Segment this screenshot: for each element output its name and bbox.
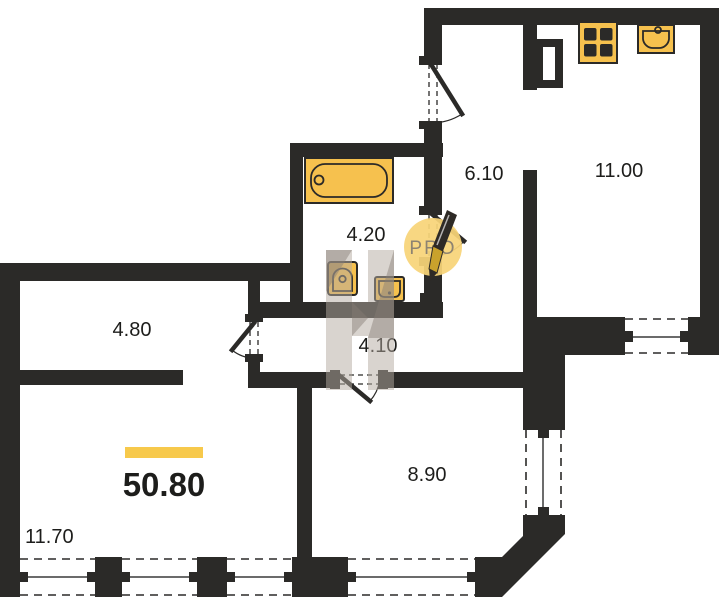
room-area-entry-hall: 6.10: [465, 163, 504, 185]
vent-shaft: [539, 43, 559, 84]
wall-segment: [380, 372, 540, 388]
wall-segment: [688, 317, 719, 355]
wall-segment: [292, 557, 348, 597]
windows: [20, 319, 688, 595]
total-area: 50.80: [123, 447, 206, 503]
room-area-hallway: 4.80: [113, 319, 152, 341]
wall-divider: [297, 372, 312, 557]
wall-segment: [523, 170, 537, 317]
total-area-label: 50.80: [123, 466, 206, 503]
room-area-bathroom: 4.20: [347, 224, 386, 246]
window: [348, 559, 475, 595]
wall-chamfer: [502, 515, 565, 597]
floor-plan: 4.80 6.10 11.00 4.20 4.10 8.90 11.70 50.…: [0, 0, 719, 600]
wall-segment: [424, 124, 442, 212]
room-area-living-room: 11.70: [25, 526, 74, 548]
kitchen-sink-icon: [637, 20, 675, 53]
window: [122, 559, 197, 595]
window: [227, 559, 292, 595]
window: [526, 430, 561, 515]
total-area-accent-bar: [125, 447, 203, 458]
wall-segment: [20, 370, 183, 385]
hallway-door: [232, 322, 258, 358]
wall-pier: [95, 557, 122, 597]
pro-badge: PRO: [404, 210, 462, 281]
wall-left: [0, 263, 20, 597]
window: [625, 319, 688, 353]
entrance-door: [429, 64, 462, 123]
wall-segment: [0, 263, 302, 281]
wall-segment: [290, 143, 303, 302]
wall-pier: [197, 557, 227, 597]
door-jamb: [419, 56, 442, 65]
wall-segment: [523, 25, 537, 90]
wall-segment: [248, 358, 260, 372]
stove-icon: [579, 22, 617, 63]
room-area-bedroom: 8.90: [408, 464, 447, 486]
floor-plan-canvas: 4.80 6.10 11.00 4.20 4.10 8.90 11.70 50.…: [0, 0, 719, 600]
door-jamb: [419, 206, 442, 215]
wall-segment: [523, 317, 625, 355]
wall-right: [700, 8, 719, 317]
room-area-kitchen: 11.00: [595, 160, 644, 182]
wall-segment: [475, 557, 502, 597]
wall-segment: [290, 143, 443, 157]
wall-segment: [248, 372, 338, 388]
h-logo-watermark: [326, 250, 394, 390]
wall-segment: [523, 355, 565, 430]
bathtub-icon: [305, 158, 393, 203]
window: [20, 559, 95, 595]
